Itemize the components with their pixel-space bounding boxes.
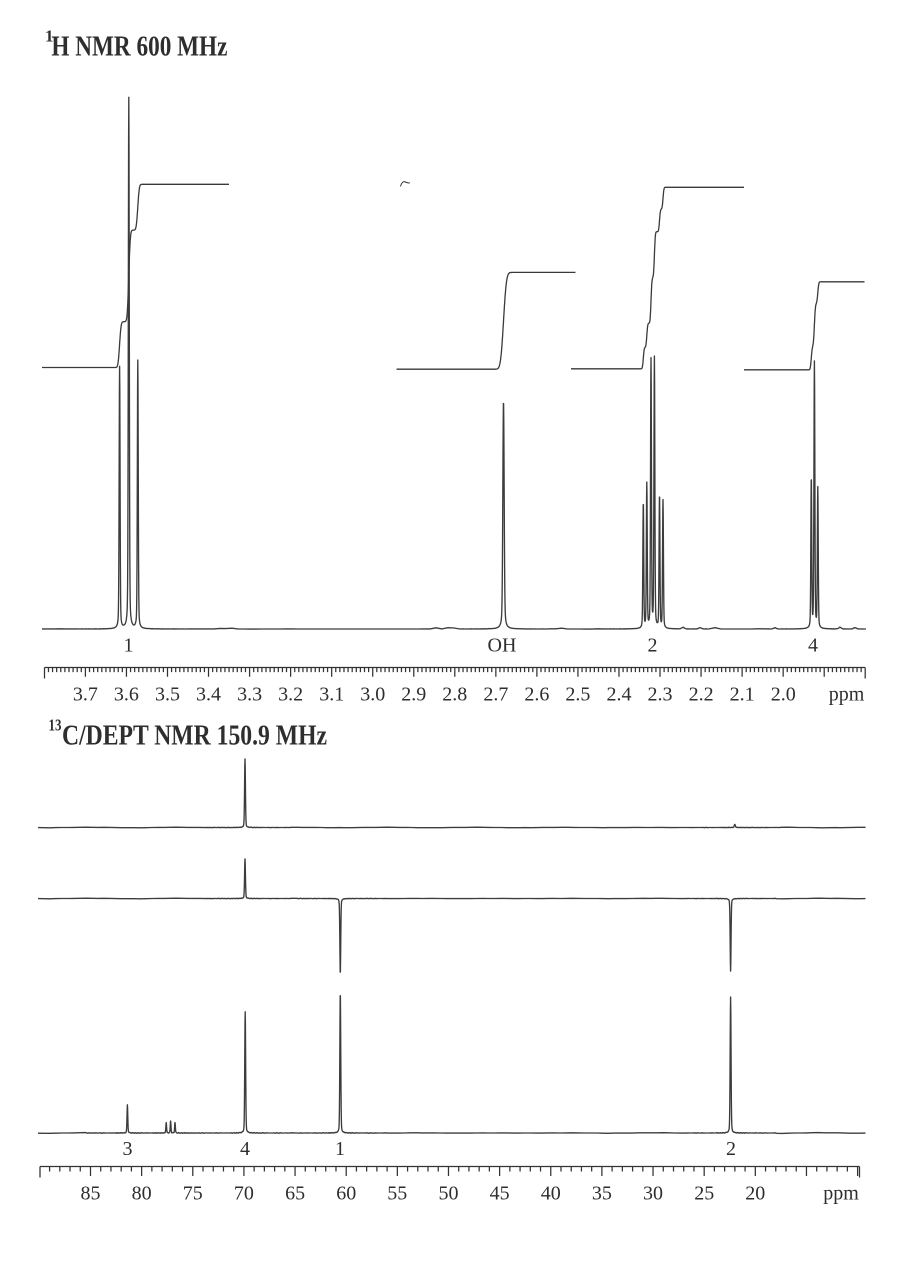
svg-text:30: 30	[643, 1183, 663, 1205]
svg-text:4: 4	[240, 1138, 250, 1160]
svg-text:2.6: 2.6	[524, 684, 549, 706]
svg-text:4: 4	[808, 635, 818, 657]
svg-text:65: 65	[285, 1183, 305, 1205]
svg-text:2: 2	[648, 635, 658, 657]
svg-text:3.3: 3.3	[237, 684, 262, 706]
svg-text:3: 3	[123, 1138, 133, 1160]
svg-text:20: 20	[745, 1183, 765, 1205]
svg-text:3.0: 3.0	[360, 684, 385, 706]
svg-text:C/DEPT NMR 150.9 MHz: C/DEPT NMR 150.9 MHz	[62, 721, 327, 752]
svg-text:2.3: 2.3	[648, 684, 673, 706]
svg-text:50: 50	[439, 1183, 459, 1205]
svg-text:35: 35	[592, 1183, 612, 1205]
svg-text:25: 25	[694, 1183, 714, 1205]
svg-text:70: 70	[234, 1183, 254, 1205]
svg-text:3.5: 3.5	[155, 684, 180, 706]
svg-text:ppm: ppm	[823, 1183, 859, 1205]
svg-text:1: 1	[124, 635, 134, 657]
svg-text:3.2: 3.2	[278, 684, 303, 706]
svg-text:2.7: 2.7	[483, 684, 508, 706]
svg-text:45: 45	[490, 1183, 510, 1205]
svg-text:3.7: 3.7	[73, 684, 98, 706]
svg-text:OH: OH	[488, 635, 517, 657]
svg-text:60: 60	[336, 1183, 356, 1205]
svg-text:3.1: 3.1	[319, 684, 344, 706]
svg-text:85: 85	[81, 1183, 101, 1205]
svg-text:80: 80	[132, 1183, 152, 1205]
svg-text:2.5: 2.5	[565, 684, 590, 706]
svg-text:H NMR 600 MHz: H NMR 600 MHz	[51, 32, 227, 63]
svg-text:13: 13	[49, 716, 62, 735]
svg-text:3.4: 3.4	[196, 684, 221, 706]
svg-text:2.8: 2.8	[442, 684, 467, 706]
svg-text:55: 55	[387, 1183, 407, 1205]
svg-text:2.9: 2.9	[401, 684, 426, 706]
svg-text:2.2: 2.2	[689, 684, 714, 706]
svg-text:2.0: 2.0	[771, 684, 796, 706]
svg-text:2.4: 2.4	[607, 684, 632, 706]
svg-text:ppm: ppm	[829, 684, 865, 706]
svg-text:40: 40	[541, 1183, 561, 1205]
svg-text:3.6: 3.6	[114, 684, 139, 706]
svg-text:2.1: 2.1	[730, 684, 755, 706]
svg-text:2: 2	[726, 1138, 736, 1160]
svg-text:1: 1	[335, 1138, 345, 1160]
svg-text:75: 75	[183, 1183, 203, 1205]
